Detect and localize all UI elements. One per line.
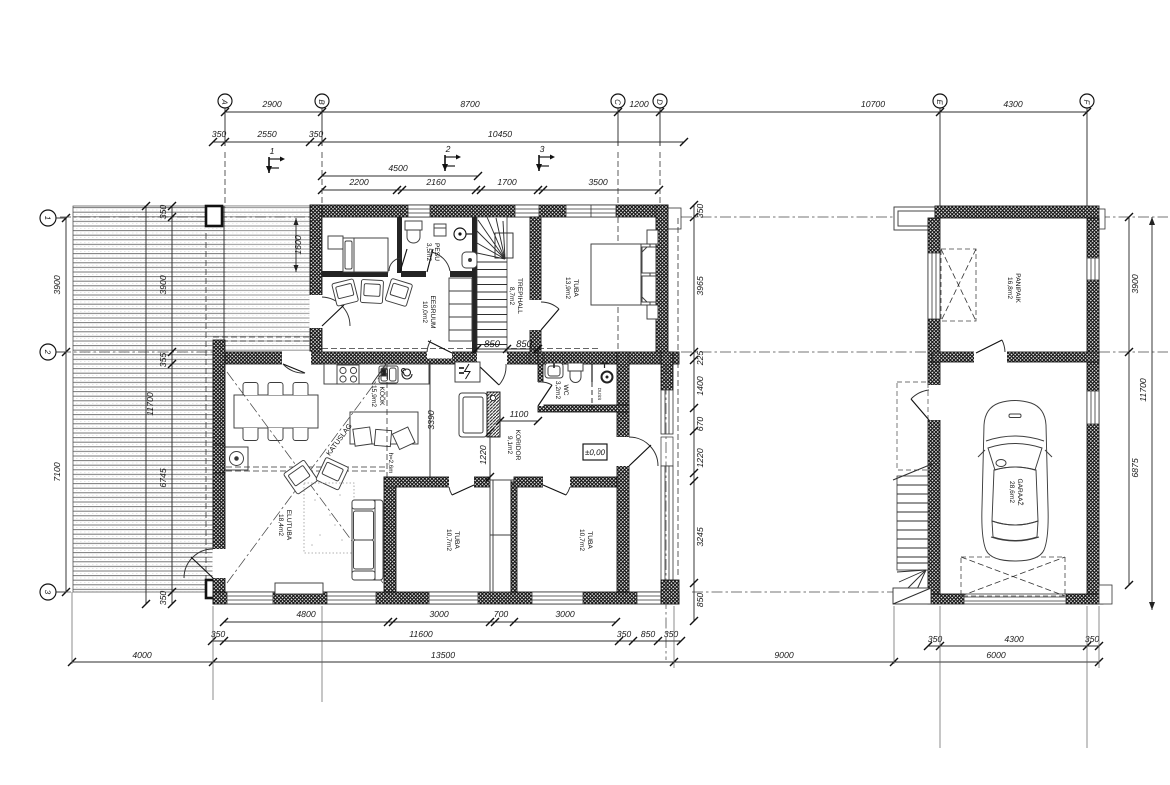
svg-text:1400: 1400 <box>695 376 705 395</box>
svg-text:850: 850 <box>641 629 656 639</box>
svg-text:9,1m2: 9,1m2 <box>506 436 513 455</box>
svg-text:16,8m2: 16,8m2 <box>1006 277 1013 299</box>
svg-text:1: 1 <box>43 216 52 220</box>
svg-text:E: E <box>935 99 944 105</box>
svg-text:TUBA: TUBA <box>586 531 593 549</box>
svg-text:1100: 1100 <box>510 409 529 419</box>
svg-text:13,9m2: 13,9m2 <box>564 277 571 299</box>
svg-text:4800: 4800 <box>296 609 315 619</box>
svg-text:28,6m2: 28,6m2 <box>1008 481 1015 503</box>
svg-text:6875: 6875 <box>1130 458 1140 477</box>
svg-text:350: 350 <box>695 204 705 219</box>
svg-text:13500: 13500 <box>431 650 455 660</box>
svg-text:DUSS: DUSS <box>597 388 602 401</box>
svg-text:9000: 9000 <box>774 650 793 660</box>
svg-text:2900: 2900 <box>261 99 281 109</box>
svg-text:2: 2 <box>445 144 451 154</box>
svg-text:18,4m2: 18,4m2 <box>277 514 284 536</box>
svg-text:670: 670 <box>695 417 705 432</box>
svg-text:850: 850 <box>695 593 705 608</box>
svg-text:1: 1 <box>270 146 275 156</box>
svg-text:±0,00: ±0,00 <box>585 448 606 457</box>
svg-text:10,7m2: 10,7m2 <box>578 529 585 551</box>
svg-text:2160: 2160 <box>425 177 445 187</box>
svg-text:4000: 4000 <box>132 650 151 660</box>
svg-text:GARAAŽ: GARAAŽ <box>1016 478 1024 505</box>
svg-text:350: 350 <box>158 205 168 220</box>
svg-text:KÖÖK: KÖÖK <box>378 386 386 406</box>
svg-text:TUBA: TUBA <box>572 279 579 297</box>
svg-text:350: 350 <box>664 629 679 639</box>
svg-text:8700: 8700 <box>460 99 479 109</box>
svg-text:355: 355 <box>158 353 168 368</box>
svg-text:EESRUUM: EESRUUM <box>429 296 436 329</box>
svg-text:TUBA: TUBA <box>453 531 460 549</box>
svg-text:1220: 1220 <box>695 448 705 467</box>
svg-text:4500: 4500 <box>388 163 407 173</box>
svg-text:KORIDOR: KORIDOR <box>514 430 521 461</box>
svg-text:11700: 11700 <box>1138 378 1148 402</box>
svg-text:4300: 4300 <box>1004 634 1023 644</box>
svg-text:11600: 11600 <box>409 629 433 639</box>
svg-text:10700: 10700 <box>861 99 885 109</box>
svg-text:h=2,6m: h=2,6m <box>387 453 394 474</box>
svg-text:2550: 2550 <box>256 129 276 139</box>
svg-text:2200: 2200 <box>348 177 368 187</box>
svg-text:7100: 7100 <box>52 462 62 481</box>
svg-text:3500: 3500 <box>588 177 607 187</box>
svg-text:350: 350 <box>309 129 324 139</box>
svg-text:3,2m2: 3,2m2 <box>554 381 561 400</box>
svg-text:10450: 10450 <box>488 129 512 139</box>
svg-text:8,7m2: 8,7m2 <box>508 287 515 306</box>
svg-text:1220: 1220 <box>478 445 488 464</box>
svg-text:225: 225 <box>695 351 705 367</box>
svg-text:C: C <box>613 99 622 105</box>
svg-text:A: A <box>220 98 229 104</box>
svg-text:6000: 6000 <box>986 650 1005 660</box>
svg-text:4300: 4300 <box>1003 99 1022 109</box>
svg-text:700: 700 <box>494 609 509 619</box>
svg-text:3900: 3900 <box>52 275 62 294</box>
svg-text:11700: 11700 <box>145 392 155 416</box>
svg-text:3000: 3000 <box>555 609 574 619</box>
svg-text:1200: 1200 <box>629 99 648 109</box>
svg-text:350: 350 <box>158 591 168 606</box>
svg-text:350: 350 <box>617 629 632 639</box>
svg-text:PESU: PESU <box>433 243 440 261</box>
svg-text:3000: 3000 <box>429 609 448 619</box>
svg-text:2: 2 <box>43 349 52 355</box>
svg-text:B: B <box>317 99 326 105</box>
svg-text:10,0m2: 10,0m2 <box>421 301 428 323</box>
svg-text:3900: 3900 <box>158 275 168 294</box>
svg-text:ELUTUBA: ELUTUBA <box>285 510 292 541</box>
svg-text:3,5m2: 3,5m2 <box>425 243 432 262</box>
svg-text:1700: 1700 <box>497 177 516 187</box>
svg-text:6745: 6745 <box>158 468 168 487</box>
svg-text:850: 850 <box>516 339 533 350</box>
svg-text:3: 3 <box>43 590 52 595</box>
svg-text:3390: 3390 <box>426 410 436 429</box>
svg-text:WC: WC <box>562 385 569 396</box>
svg-text:D: D <box>655 99 664 105</box>
svg-text:10,7m2: 10,7m2 <box>445 529 452 551</box>
svg-text:350: 350 <box>212 129 227 139</box>
svg-text:PANIPAIK: PANIPAIK <box>1014 273 1021 303</box>
svg-text:3900: 3900 <box>1130 274 1140 293</box>
svg-text:1600: 1600 <box>293 235 303 254</box>
svg-text:3: 3 <box>540 144 545 154</box>
svg-text:TREPIHALL: TREPIHALL <box>516 278 523 314</box>
svg-text:3965: 3965 <box>695 276 705 295</box>
svg-text:850: 850 <box>484 339 501 350</box>
svg-text:3245: 3245 <box>695 527 705 546</box>
